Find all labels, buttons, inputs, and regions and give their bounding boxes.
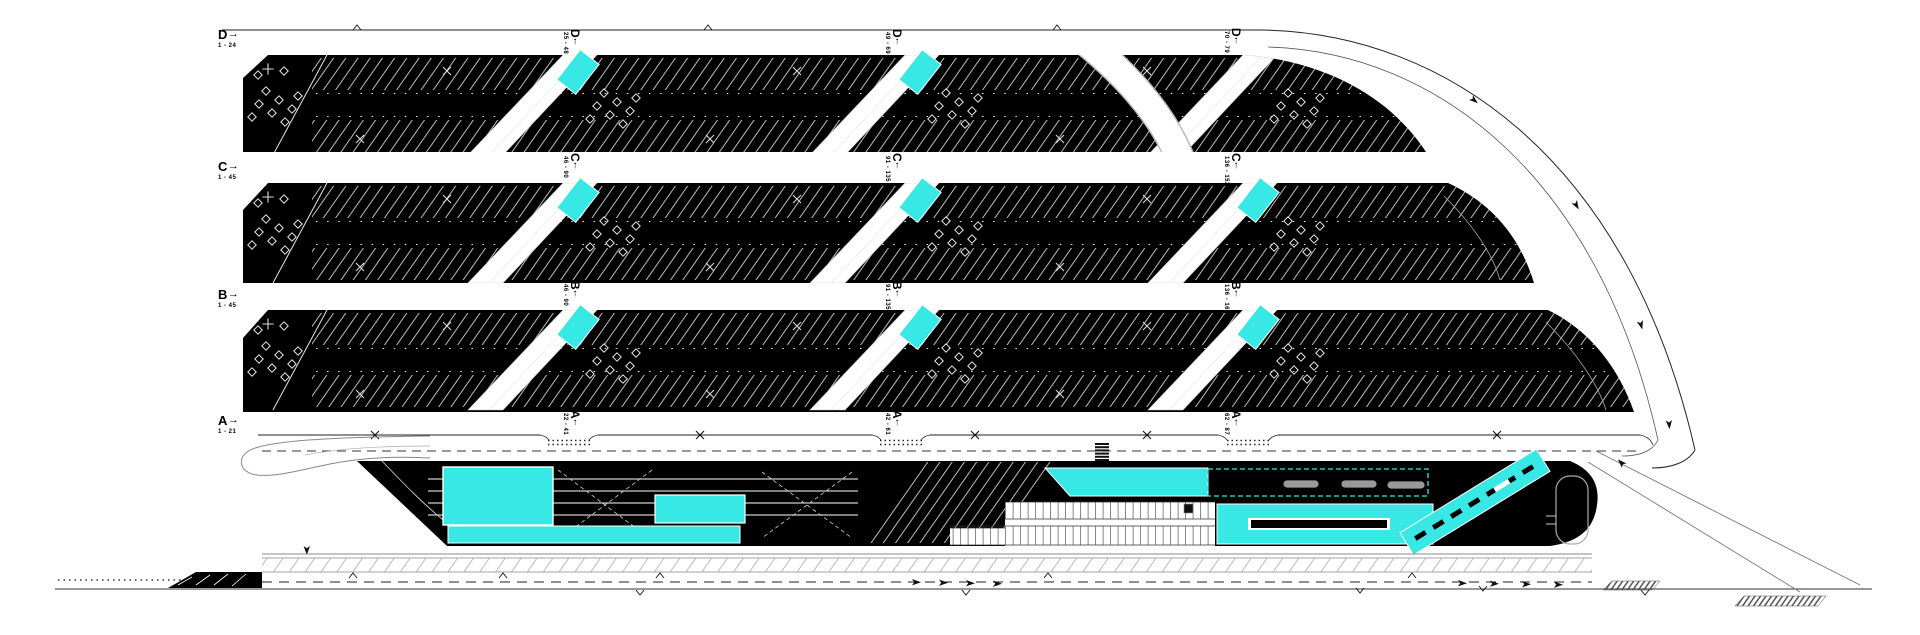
stall-range: 1 - 21 (218, 429, 239, 435)
label-C4: 136 - 152C↑ (1223, 153, 1242, 186)
label-B4: 136 - 164B↑ (1223, 281, 1242, 314)
site-plan-drawing (0, 0, 1920, 635)
label-B2: 46 - 90B↑ (562, 281, 581, 306)
label-A4: 62 - 87A↑ (1223, 410, 1242, 435)
traffic-arrow (1666, 420, 1673, 430)
row-letter: B (218, 288, 227, 301)
bus (1387, 481, 1425, 489)
up-arrow-icon: ↑ (573, 161, 578, 171)
label-D4: 70 - 79D↑ (1223, 28, 1242, 53)
up-arrow-icon: ↑ (895, 161, 900, 171)
right-arrow-icon: → (228, 289, 239, 300)
up-arrow-icon: ↑ (573, 418, 578, 428)
hatched-island-far-right (1735, 596, 1826, 606)
concourse-strip-highlight (448, 526, 740, 543)
up-arrow-icon: ↑ (1234, 289, 1239, 299)
right-arrow-icon: → (228, 29, 239, 40)
bus (1283, 480, 1319, 488)
stall-range: 1 - 45 (218, 303, 239, 309)
bus (1341, 480, 1377, 488)
pier-highlight (1045, 468, 1208, 496)
label-A2: 22 - 41A↑ (562, 410, 581, 435)
up-arrow-icon: ↑ (1234, 161, 1239, 171)
rumble-strip (548, 441, 1271, 445)
up-arrow-icon: ↑ (895, 418, 900, 428)
label-C3: 91 - 135C↑ (884, 153, 903, 182)
up-left-arrow (1616, 457, 1627, 468)
right-arrow-icon: → (228, 415, 239, 426)
hatched-island-left (168, 572, 262, 588)
crosswalk (1095, 443, 1109, 461)
label-D3: 49 - 69D↑ (884, 29, 903, 54)
label-C2: 46 - 90C↑ (562, 153, 581, 178)
label-A3: 42 - 61A↑ (884, 410, 903, 435)
site-plan: D→1 - 24 25 - 48D↑ 49 - 69D↑ 70 - 79D↑ C… (0, 0, 1920, 635)
right-arrow-icon: → (228, 161, 239, 172)
terminal-building (357, 449, 1598, 555)
up-arrow-icon: ↑ (895, 289, 900, 299)
walkway-bar (1251, 520, 1387, 528)
parking-row-b (243, 305, 1642, 412)
up-arrow-icon: ↑ (573, 37, 578, 47)
label-B1: B→1 - 45 (218, 288, 239, 309)
row-letter: D (218, 28, 227, 41)
stall-range: 1 - 24 (218, 43, 239, 49)
terminal-annex-highlight (655, 495, 745, 523)
row-letter: C (218, 160, 227, 173)
median-hatch-strip (262, 559, 1592, 572)
row-letter: A (218, 414, 227, 427)
hatched-island-right (1603, 581, 1660, 590)
traffic-arrow (1637, 320, 1646, 330)
up-arrow-icon: ↑ (1234, 418, 1239, 428)
parking-row-d (243, 33, 1642, 158)
parking-row-c (243, 178, 1642, 283)
label-B3: 91 - 135B↑ (884, 281, 903, 310)
traffic-arrow (1469, 95, 1480, 106)
label-D2: 25 - 48D↑ (562, 29, 581, 54)
label-D1: D→1 - 24 (218, 28, 239, 49)
exit-ramp-lines (1588, 451, 1860, 592)
terminal-hall-highlight (443, 467, 553, 525)
traffic-arrow (1571, 200, 1581, 211)
up-arrow-icon: ↑ (895, 37, 900, 47)
label-C1: C→1 - 45 (218, 160, 239, 181)
up-arrow-icon: ↑ (1234, 36, 1239, 46)
up-arrow-icon: ↑ (573, 289, 578, 299)
stall-range: 1 - 45 (218, 175, 239, 181)
label-A1: A→1 - 21 (218, 414, 239, 435)
